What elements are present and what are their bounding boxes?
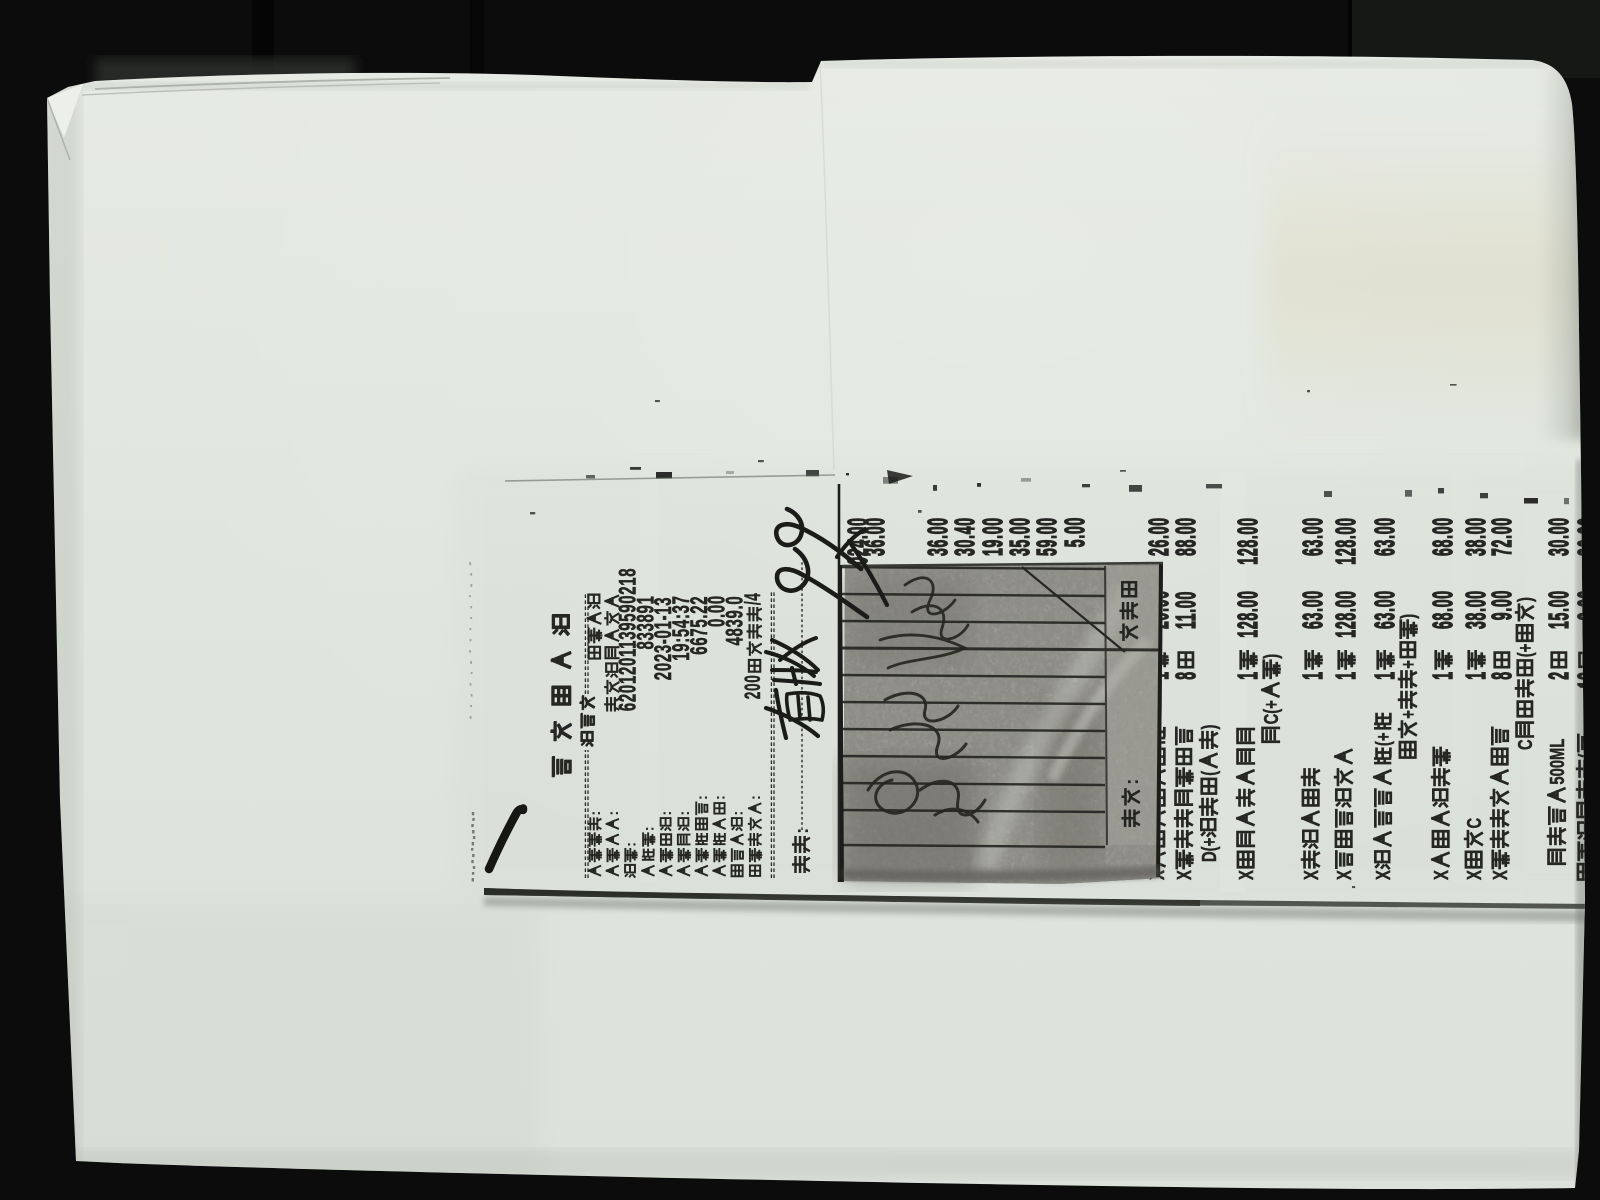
svg-text::: : xyxy=(730,811,746,816)
svg-text:63.00: 63.00 xyxy=(1297,590,1329,629)
svg-text:5.00: 5.00 xyxy=(1059,517,1091,547)
svg-text::: : xyxy=(588,811,604,816)
svg-text:X: X xyxy=(1489,870,1512,880)
svg-text:128.00: 128.00 xyxy=(1232,590,1264,637)
svg-text:128.00: 128.00 xyxy=(1330,517,1362,564)
svg-text:200: 200 xyxy=(740,675,765,700)
svg-text:30.00: 30.00 xyxy=(1543,517,1575,556)
svg-text:128.00: 128.00 xyxy=(1232,517,1264,564)
svg-text:+: + xyxy=(1397,710,1420,719)
svg-text:X: X xyxy=(1333,870,1356,880)
svg-text::: : xyxy=(606,811,622,816)
svg-text:(+: (+ xyxy=(1514,644,1537,658)
svg-text:/4: /4 xyxy=(740,592,765,605)
svg-text:): ) xyxy=(1198,725,1221,730)
svg-text:9.00: 9.00 xyxy=(1486,590,1518,620)
svg-text:X: X xyxy=(1235,870,1258,880)
svg-text:): ) xyxy=(1260,654,1283,659)
svg-text::: : xyxy=(713,795,729,800)
svg-text:88.00: 88.00 xyxy=(1170,517,1202,556)
svg-text:X: X xyxy=(1430,870,1453,880)
svg-text:C(+: C(+ xyxy=(1260,700,1283,724)
svg-text:1: 1 xyxy=(1232,671,1264,680)
svg-text:1: 1 xyxy=(1369,671,1401,680)
svg-text::: : xyxy=(748,795,764,800)
svg-text:30.40: 30.40 xyxy=(949,517,981,556)
svg-text::: : xyxy=(641,826,657,831)
svg-text:68.00: 68.00 xyxy=(1427,517,1459,556)
svg-text::: : xyxy=(695,795,711,800)
svg-text:59.00: 59.00 xyxy=(1031,517,1063,556)
svg-text:2: 2 xyxy=(1543,671,1575,680)
svg-text:C: C xyxy=(1463,818,1486,829)
svg-text:63.00: 63.00 xyxy=(1297,517,1329,556)
svg-text:8: 8 xyxy=(1486,671,1518,680)
svg-text:1: 1 xyxy=(1330,671,1362,680)
svg-text:1: 1 xyxy=(1297,671,1329,680)
svg-text:X: X xyxy=(1173,870,1196,880)
svg-text:128.00: 128.00 xyxy=(1330,590,1362,637)
svg-text:500ML: 500ML xyxy=(1546,739,1569,785)
svg-text:): ) xyxy=(1514,597,1537,602)
svg-text:+: + xyxy=(1397,660,1420,669)
svg-text:36.00: 36.00 xyxy=(859,517,891,556)
svg-text:8: 8 xyxy=(1170,671,1202,680)
svg-text:63.00: 63.00 xyxy=(1369,590,1401,629)
svg-text::: : xyxy=(659,811,675,816)
svg-text:C: C xyxy=(1514,739,1537,750)
svg-text:): ) xyxy=(1397,614,1420,619)
svg-text:X: X xyxy=(1300,870,1323,880)
svg-text:72.00: 72.00 xyxy=(1486,517,1518,556)
svg-text:15.00: 15.00 xyxy=(1543,590,1575,629)
svg-text:(: ( xyxy=(1198,771,1221,776)
svg-text:D(+: D(+ xyxy=(1198,838,1221,862)
svg-text:X: X xyxy=(1463,870,1486,880)
svg-text:X: X xyxy=(1372,870,1395,880)
svg-text:(+: (+ xyxy=(1372,733,1395,747)
svg-text:11.00: 11.00 xyxy=(1170,591,1202,629)
svg-text:68.00: 68.00 xyxy=(1427,590,1459,629)
svg-text:1: 1 xyxy=(1427,671,1459,680)
svg-text::: : xyxy=(1121,779,1143,786)
svg-text:63.00: 63.00 xyxy=(1369,517,1401,556)
svg-text::: : xyxy=(624,842,640,847)
svg-text::: : xyxy=(677,811,693,816)
